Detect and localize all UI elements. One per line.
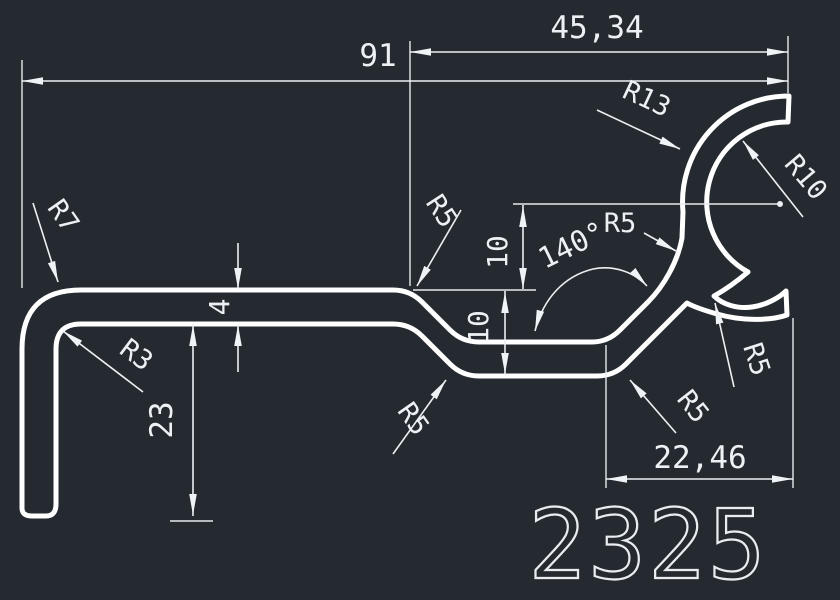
dim-wall-thickness-label: 4 <box>203 299 236 316</box>
leader-r13: R13 <box>597 75 682 153</box>
dim-arrow-icon <box>606 475 627 483</box>
dimension-offset-upper: 10 <box>481 205 527 289</box>
cad-drawing-canvas[interactable]: 91 45,34 22,46 23 4 10 10 <box>0 0 840 600</box>
radius-r7-label: R7 <box>41 194 85 238</box>
dim-arrow-icon <box>531 310 544 332</box>
dim-arrow-icon <box>767 77 788 85</box>
dimension-lower-width: 22,46 <box>606 440 793 483</box>
leader-arrow-icon <box>659 137 681 153</box>
dim-arrow-icon <box>234 325 242 346</box>
leader-arrow-icon <box>656 237 678 254</box>
radius-r3-label: R3 <box>114 333 159 377</box>
dim-arrow-icon <box>519 206 527 227</box>
radius-r10-label: R10 <box>778 149 833 206</box>
dim-arrow-icon <box>501 292 509 313</box>
leader-arrow-icon <box>48 261 62 283</box>
radius-r13-label: R13 <box>618 75 675 124</box>
part-number: 2325 <box>528 489 767 600</box>
center-point-mark <box>777 201 783 207</box>
dimension-overall-width: 91 <box>22 38 788 85</box>
dim-offset-upper-label: 10 <box>481 235 514 269</box>
dim-overall-width-label: 91 <box>359 38 396 74</box>
dim-leg-height-label: 23 <box>144 401 180 438</box>
dimension-offset-lower: 10 <box>462 291 509 375</box>
dim-bend-angle-label: 140° <box>533 214 611 275</box>
leader-r5-lower-right: R5 <box>627 378 715 433</box>
radius-r5-mid-label: R5 <box>604 208 637 239</box>
dim-arrow-icon <box>189 494 197 515</box>
leader-r5-mid: R5 <box>604 208 678 254</box>
dim-arrow-icon <box>772 475 793 483</box>
dim-arrow-icon <box>501 353 509 374</box>
leader-r10: R10 <box>740 139 833 217</box>
radius-r5-branch-label: R5 <box>736 339 776 380</box>
dim-upper-width-label: 45,34 <box>550 10 643 46</box>
leader-arrow-icon <box>431 378 449 399</box>
dim-arrow-icon <box>519 268 527 289</box>
leader-r5-lower-left: R5 <box>391 378 449 454</box>
radius-r5-top-label: R5 <box>419 189 463 233</box>
dim-lower-width-label: 22,46 <box>653 440 746 476</box>
dim-arrow-icon <box>189 325 197 346</box>
dim-arrow-icon <box>234 268 242 289</box>
dim-arrow-icon <box>22 77 43 85</box>
leader-r3: R3 <box>61 328 159 392</box>
leader-r5-top-bend: R5 <box>414 189 463 288</box>
dim-arrow-icon <box>767 48 788 56</box>
radius-r5-lower-right-label: R5 <box>670 384 714 429</box>
dimension-upper-width: 45,34 <box>410 10 788 56</box>
dim-arrow-icon <box>410 48 431 56</box>
leader-r7: R7 <box>33 194 85 283</box>
dim-offset-lower-label: 10 <box>462 310 495 344</box>
dimension-wall-thickness: 4 <box>203 243 242 372</box>
leader-arrow-icon <box>414 266 431 288</box>
